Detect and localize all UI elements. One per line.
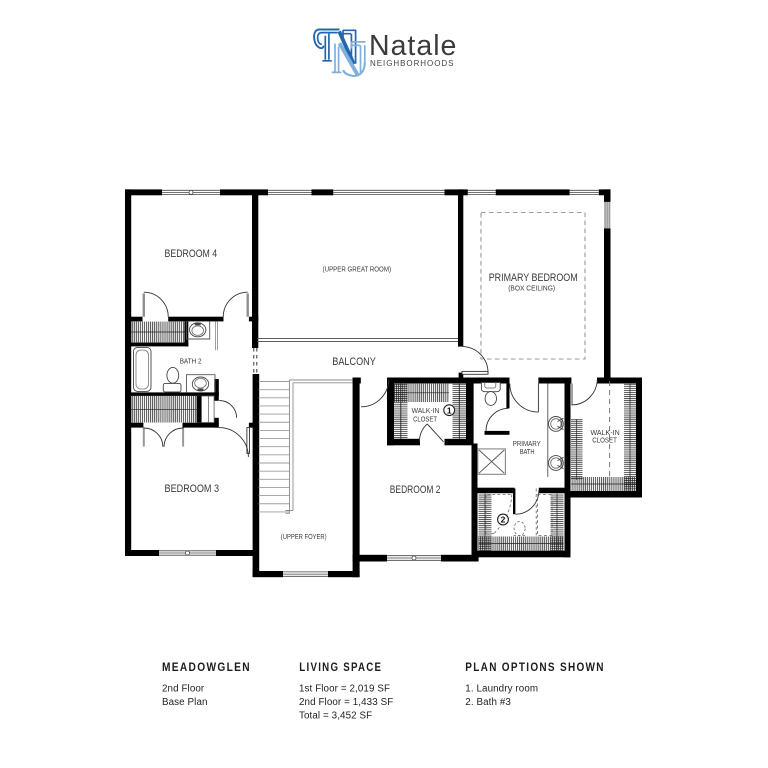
svg-text:BEDROOM 4: BEDROOM 4	[165, 248, 218, 260]
svg-text:CLOSET: CLOSET	[413, 414, 437, 423]
svg-text:BATH: BATH	[520, 447, 535, 456]
svg-text:1. Laundry room: 1. Laundry room	[465, 684, 538, 695]
svg-text:PRIMARY BEDROOM: PRIMARY BEDROOM	[489, 272, 578, 284]
svg-text:BATH 2: BATH 2	[180, 356, 202, 365]
svg-text:2nd Floor: 2nd Floor	[162, 684, 205, 695]
svg-text:2nd Floor = 1,433 SF: 2nd Floor = 1,433 SF	[299, 697, 393, 708]
svg-text:MEADOWGLEN: MEADOWGLEN	[162, 662, 251, 674]
svg-text:2: 2	[501, 515, 506, 525]
svg-text:(UPPER GREAT ROOM): (UPPER GREAT ROOM)	[323, 264, 392, 273]
svg-text:(UPPER FOYER): (UPPER FOYER)	[281, 532, 327, 541]
svg-text:NEIGHBORHOODS: NEIGHBORHOODS	[370, 58, 454, 68]
svg-text:BEDROOM 2: BEDROOM 2	[390, 484, 441, 496]
svg-text:CLOSET: CLOSET	[592, 435, 617, 444]
svg-text:2. Bath #3: 2. Bath #3	[465, 697, 511, 708]
svg-text:LIVING SPACE: LIVING SPACE	[299, 662, 382, 674]
svg-text:Base Plan: Base Plan	[162, 697, 208, 708]
svg-text:Total = 3,452 SF: Total = 3,452 SF	[299, 711, 372, 722]
svg-text:(BOX CEILING): (BOX CEILING)	[508, 284, 555, 293]
svg-text:BALCONY: BALCONY	[332, 356, 376, 368]
svg-text:BEDROOM 3: BEDROOM 3	[165, 483, 220, 495]
svg-text:1st Floor = 2,019 SF: 1st Floor = 2,019 SF	[299, 684, 390, 695]
svg-text:1: 1	[447, 405, 452, 415]
svg-text:PLAN OPTIONS SHOWN: PLAN OPTIONS SHOWN	[465, 662, 605, 674]
